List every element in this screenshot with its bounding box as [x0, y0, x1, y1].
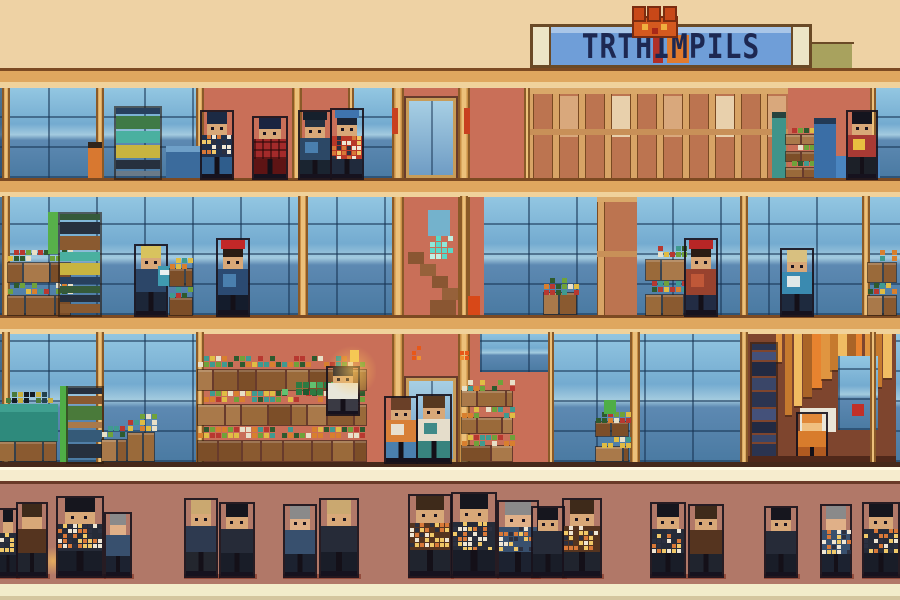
pixel [32, 283, 37, 288]
pixel [579, 536, 583, 540]
eye [575, 518, 578, 521]
face [290, 519, 310, 530]
block [468, 296, 480, 315]
pixel [415, 538, 419, 542]
pixel [8, 289, 13, 294]
pixel [26, 250, 31, 255]
pixel [120, 432, 125, 437]
pixel [303, 389, 309, 395]
eye [236, 261, 239, 264]
pixel [658, 246, 663, 251]
crate-stack [544, 278, 578, 315]
crate [284, 441, 311, 461]
pixel [864, 534, 868, 538]
pixel [68, 524, 72, 528]
hair [141, 246, 161, 258]
pixel [93, 539, 97, 543]
torso [186, 526, 216, 552]
pixel [258, 362, 263, 367]
goods-block [68, 430, 102, 442]
hair [3, 510, 14, 522]
crate [219, 441, 241, 461]
hair [290, 506, 310, 519]
goods-block [60, 263, 100, 275]
crowd-person[interactable] [186, 500, 216, 576]
pixel [564, 536, 568, 540]
eye [309, 130, 312, 133]
crowd-person[interactable] [106, 514, 130, 576]
pixel [498, 407, 503, 412]
feet [58, 571, 102, 576]
pixel [20, 250, 25, 255]
feet [18, 572, 46, 576]
crowd-person[interactable] [690, 506, 722, 576]
crowd-person[interactable] [0, 510, 16, 576]
torso [798, 431, 826, 447]
legs [453, 550, 495, 571]
pixel [216, 391, 221, 396]
feet [690, 572, 722, 576]
feet [766, 572, 796, 576]
pixel [886, 283, 891, 288]
pixel [652, 281, 657, 286]
torso [221, 529, 253, 553]
feet [136, 311, 166, 315]
face [505, 515, 531, 527]
pixel [10, 548, 14, 552]
crowd-person[interactable] [58, 498, 102, 576]
character[interactable] [848, 112, 876, 178]
pixel [146, 426, 151, 431]
eye [318, 130, 321, 133]
pixel [294, 356, 299, 361]
pixel [510, 380, 515, 385]
pixel [453, 542, 457, 546]
pixel [524, 532, 528, 536]
face [391, 410, 411, 420]
pixel [804, 128, 809, 133]
eye [465, 513, 468, 516]
pixel [488, 527, 492, 531]
pixel [436, 254, 441, 259]
goods-block [752, 362, 776, 376]
crowd-person[interactable] [822, 506, 850, 576]
pixel [672, 544, 676, 548]
crate [26, 296, 54, 315]
pixel [569, 536, 573, 540]
eye [775, 523, 778, 526]
eye [437, 411, 440, 414]
crate [462, 391, 476, 406]
pixel [483, 527, 487, 531]
pixel [440, 528, 444, 532]
torso [18, 529, 46, 553]
pixel [222, 391, 227, 396]
elevator-door[interactable] [406, 98, 456, 178]
eye [510, 519, 513, 522]
feet [332, 174, 362, 178]
pixel [354, 427, 359, 432]
pixel [420, 528, 424, 532]
crowd-person[interactable] [321, 500, 357, 576]
pixel [430, 533, 434, 537]
feet [300, 174, 330, 178]
pixel [510, 435, 515, 440]
pixel [210, 391, 215, 396]
pixel [468, 435, 473, 440]
crate [560, 293, 576, 314]
pixel [288, 433, 293, 438]
pixel [602, 418, 607, 423]
eye [263, 132, 266, 135]
crate [462, 418, 476, 433]
goods-block [116, 116, 160, 129]
crowd-person[interactable] [221, 504, 253, 576]
eye [195, 518, 198, 521]
block [0, 596, 900, 600]
feet [106, 572, 130, 576]
pixel [486, 435, 491, 440]
pixel [318, 356, 323, 361]
pixel [88, 544, 92, 548]
pixel [460, 351, 464, 355]
pixel [204, 362, 209, 367]
eye [71, 516, 74, 519]
pixel [210, 397, 215, 402]
pixel [568, 284, 573, 289]
pixel [584, 531, 588, 535]
pixel [288, 427, 293, 432]
pixel [207, 135, 211, 139]
pixel [498, 380, 503, 385]
block [166, 152, 204, 178]
character[interactable] [798, 414, 826, 462]
pixel [198, 362, 203, 367]
pixel [544, 284, 549, 289]
eye [522, 519, 525, 522]
pixel [474, 407, 479, 412]
crate [786, 135, 800, 144]
pixel [18, 392, 23, 397]
pixel [440, 543, 444, 547]
character[interactable] [686, 240, 716, 315]
crate [492, 446, 512, 461]
legs [564, 552, 600, 571]
crowd-person[interactable] [285, 506, 315, 576]
pixel [300, 433, 305, 438]
crowd-person[interactable] [499, 502, 537, 576]
window-glass [548, 332, 748, 462]
pixel [440, 523, 444, 527]
crate [612, 422, 628, 436]
crowd-person[interactable] [410, 496, 450, 576]
torso [652, 529, 684, 553]
pixel [188, 287, 193, 292]
eye [227, 261, 230, 264]
crowd-person[interactable] [18, 504, 46, 576]
pixel [222, 362, 227, 367]
hair [337, 118, 357, 125]
produce-row [128, 414, 156, 433]
pixel [212, 145, 216, 149]
produce-row [170, 258, 194, 269]
block [432, 276, 448, 288]
feet [533, 572, 563, 576]
pixel [589, 546, 593, 550]
pixel [348, 433, 353, 438]
face [337, 125, 357, 136]
pixel [317, 389, 323, 395]
crate [802, 135, 814, 144]
crate [804, 168, 814, 177]
character[interactable] [418, 396, 450, 462]
hair [391, 398, 411, 410]
pixel [73, 529, 77, 533]
pixel [216, 427, 221, 432]
block [814, 124, 836, 178]
pixel [544, 290, 549, 295]
pixel [217, 145, 221, 149]
crate [308, 405, 326, 425]
pixel [462, 441, 467, 446]
crate [44, 442, 56, 461]
pixel [880, 250, 885, 255]
feet [848, 174, 876, 178]
crate [118, 440, 126, 461]
character[interactable] [218, 240, 248, 315]
character[interactable] [300, 112, 330, 178]
torso [332, 136, 362, 159]
pixel [556, 284, 561, 289]
crowd-person[interactable] [564, 500, 600, 576]
pixel [212, 150, 216, 154]
pixel [42, 398, 47, 403]
eye [395, 413, 398, 416]
pixel [463, 532, 467, 536]
pixel [589, 531, 593, 535]
pixel [336, 433, 341, 438]
pixel [425, 538, 429, 542]
face [223, 257, 243, 269]
pixel [478, 537, 482, 541]
crate [8, 263, 22, 282]
feet [386, 458, 416, 462]
pixel [210, 362, 215, 367]
torso [782, 272, 812, 294]
goods-block [60, 214, 100, 220]
pixel [36, 398, 41, 403]
crate [226, 405, 240, 425]
crate [292, 405, 306, 425]
pixel [217, 135, 221, 139]
crate [128, 433, 142, 461]
block [0, 329, 900, 334]
gold-column [2, 88, 10, 178]
pixel [176, 258, 181, 263]
pixel [234, 433, 239, 438]
pixel [504, 413, 509, 418]
face [852, 124, 871, 135]
pixel [227, 135, 231, 139]
pixel [499, 547, 503, 551]
hair [869, 504, 892, 517]
pixel [892, 289, 897, 294]
hair [695, 506, 717, 519]
hanging-strip [776, 334, 782, 362]
block [428, 210, 450, 236]
pixel [20, 256, 25, 261]
hair [65, 498, 95, 512]
pixel [453, 537, 457, 541]
legs [254, 159, 286, 174]
pixel [312, 356, 317, 361]
eye [542, 523, 545, 526]
feet [782, 311, 812, 315]
pixel [579, 541, 583, 545]
pixel [134, 420, 139, 425]
pixel [202, 150, 206, 154]
pixel [207, 140, 211, 144]
eye [884, 521, 887, 524]
pixel [347, 141, 351, 145]
pixel [483, 532, 487, 536]
crate [462, 446, 490, 461]
pixel [504, 532, 508, 536]
pixel [182, 264, 187, 269]
crate [102, 440, 116, 461]
torso-patch [223, 274, 236, 288]
legs [0, 555, 16, 572]
face [802, 423, 821, 431]
character[interactable] [254, 118, 286, 178]
pixel [626, 437, 631, 442]
pixel [436, 248, 441, 253]
crate [269, 405, 290, 425]
pixel [480, 435, 485, 440]
pixel [38, 289, 43, 294]
pixel [252, 391, 257, 396]
pixel [842, 540, 846, 544]
pixel [832, 545, 836, 549]
crowd-person[interactable] [533, 508, 563, 576]
eye [586, 518, 589, 521]
feet [285, 572, 315, 576]
pixel [445, 538, 449, 542]
wood-rail [526, 129, 788, 135]
torso [58, 524, 102, 551]
pixel [324, 427, 329, 432]
pixel [492, 386, 497, 391]
pixel [430, 242, 435, 247]
legs [328, 399, 358, 411]
pixel [626, 443, 631, 448]
pixel [564, 531, 568, 535]
torso [410, 523, 450, 550]
crate [646, 295, 661, 315]
goods-block [60, 236, 100, 250]
crate [0, 442, 14, 461]
pixel [892, 256, 897, 261]
pixel [415, 528, 419, 532]
pixel [569, 541, 573, 545]
wood-partition [597, 196, 637, 315]
pixel [483, 537, 487, 541]
block [464, 108, 470, 134]
produce-row [786, 161, 816, 168]
pixel [652, 539, 656, 543]
pixel [204, 356, 209, 361]
pixel [415, 543, 419, 547]
character[interactable] [386, 398, 416, 462]
character[interactable] [202, 112, 232, 178]
gold-column [524, 88, 530, 178]
pixel [222, 145, 226, 149]
crate [646, 260, 660, 280]
pixel [509, 532, 513, 536]
eye [661, 521, 664, 524]
character[interactable] [782, 250, 812, 315]
pixel [410, 533, 414, 537]
legs [848, 157, 876, 174]
torso [254, 139, 286, 159]
pixel [270, 362, 275, 367]
pixel [562, 278, 567, 283]
pixel [240, 397, 245, 402]
pixel [664, 281, 669, 286]
pixel [463, 542, 467, 546]
pixel [114, 426, 119, 431]
face [22, 517, 41, 529]
pixel [519, 527, 523, 531]
pixel [258, 391, 263, 396]
block [48, 212, 58, 254]
pixel [510, 386, 515, 391]
pixel [474, 435, 479, 440]
pixel [300, 362, 305, 367]
crowd-person[interactable] [652, 504, 684, 576]
pixel [176, 264, 181, 269]
crate [170, 298, 192, 315]
hair [207, 112, 227, 124]
pixel [473, 532, 477, 536]
block [350, 350, 359, 362]
face [191, 514, 211, 526]
crate [478, 418, 501, 433]
pixel [176, 293, 181, 298]
pixel [430, 523, 434, 527]
crowd-person[interactable] [864, 504, 898, 576]
crowd-person[interactable] [766, 508, 796, 576]
crate [884, 296, 896, 315]
torso [766, 531, 796, 554]
character[interactable] [332, 110, 362, 178]
pixel [442, 248, 447, 253]
face [538, 520, 558, 531]
pixel [210, 427, 215, 432]
torso [848, 135, 876, 157]
pixel [602, 443, 607, 448]
torso [822, 530, 850, 554]
pixel [252, 362, 257, 367]
crowd-person[interactable] [453, 494, 495, 576]
pixel [258, 433, 263, 438]
pixel [652, 544, 656, 548]
pixel [435, 538, 439, 542]
pixel [667, 534, 671, 538]
crate [786, 168, 802, 177]
pixel [63, 539, 67, 543]
pixel [445, 528, 449, 532]
